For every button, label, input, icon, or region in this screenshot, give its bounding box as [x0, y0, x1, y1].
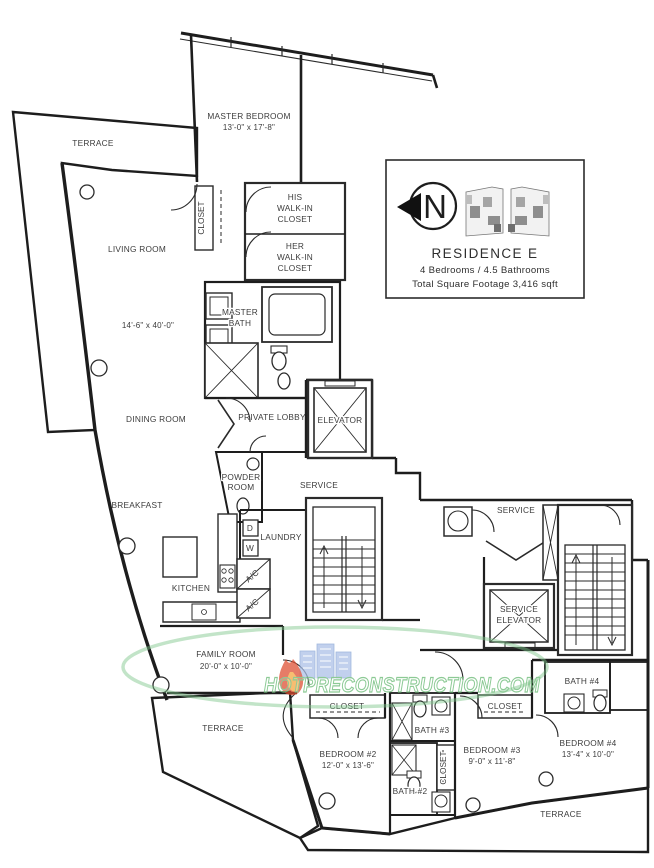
label-service-elevator-1: SERVICE [500, 604, 538, 614]
bidet [278, 373, 290, 389]
label-his-closet-2: WALK-IN [277, 203, 313, 213]
north-letter: N [423, 188, 447, 225]
kitchen [163, 514, 240, 622]
label-dining-room: DINING ROOM [126, 414, 186, 424]
label-breakfast: BREAKFAST [111, 500, 162, 510]
label-closet-hall: CLOSET [438, 751, 448, 784]
label-terrace-br: TERRACE [540, 809, 582, 819]
powder-sink [247, 458, 259, 470]
watermark: HOTPRECONSTRUCTION.COM [123, 627, 547, 707]
label-gallery-closet: CLOSET [196, 201, 206, 234]
double-door [486, 541, 546, 560]
label-bath4: BATH #4 [565, 676, 600, 686]
kitchen-counter [218, 514, 237, 592]
label-his-closet-3: CLOSET [278, 214, 313, 224]
bathtub [262, 287, 332, 342]
label-living-room: LIVING ROOM [108, 244, 166, 254]
label-her-closet-3: CLOSET [278, 263, 313, 273]
label-his-closet-1: HIS [288, 192, 303, 202]
terrace-top-left [13, 112, 197, 432]
label-terrace-top: TERRACE [72, 138, 114, 148]
legend-box: N RESIDENCE E 4 Bedrooms / 4.5 Bathrooms… [386, 160, 584, 298]
terrace-bottom-left [152, 692, 318, 838]
label-dryer: D [247, 523, 253, 533]
dims-bedroom2: 12'-0" x 13'-6" [322, 761, 374, 770]
dims-family-room: 20'-0" x 10'-0" [200, 662, 252, 671]
watermark-text: HOTPRECONSTRUCTION.COM [264, 673, 540, 697]
label-powder-2: ROOM [228, 482, 255, 492]
dims-bedroom4: 13'-4" x 10'-0" [562, 750, 614, 759]
label-service-hall: SERVICE [300, 480, 338, 490]
floorplan-sheet: TERRACE MASTER BEDROOM 13'-0" x 17'-8" C… [0, 0, 654, 868]
dims-master-bedroom: 13'-0" x 17'-8" [223, 123, 275, 132]
label-closet-b3: CLOSET [488, 701, 523, 711]
legend-square-footage: Total Square Footage 3,416 sqft [412, 279, 558, 290]
bath4 [545, 662, 648, 713]
kitchen-island [163, 537, 197, 577]
service-stair-left [306, 498, 382, 620]
powder-toilet [237, 498, 249, 514]
label-bedroom4: BEDROOM #4 [560, 738, 617, 748]
label-kitchen: KITCHEN [172, 583, 210, 593]
label-private-lobby: PRIVATE LOBBY [238, 412, 306, 422]
floorplan-drawing: TERRACE MASTER BEDROOM 13'-0" x 17'-8" C… [0, 0, 654, 868]
label-her-closet-1: HER [286, 241, 304, 251]
dims-living-room: 14'-6" x 40'-0" [122, 321, 174, 330]
utility-sink [444, 507, 472, 536]
label-washer: W [246, 543, 254, 553]
toilet [271, 346, 287, 370]
label-family-room: FAMILY ROOM [196, 649, 256, 659]
label-bath2: BATH #2 [393, 786, 428, 796]
label-laundry: LAUNDRY [260, 532, 301, 542]
legend-residence-title: RESIDENCE E [432, 246, 539, 261]
label-service-area: SERVICE [497, 505, 535, 515]
label-service-elevator-2: ELEVATOR [497, 615, 542, 625]
label-elevator: ELEVATOR [318, 415, 363, 425]
label-master-bath-1: MASTER [222, 307, 258, 317]
label-her-closet-2: WALK-IN [277, 252, 313, 262]
service-stair-right [558, 505, 632, 655]
label-bedroom2: BEDROOM #2 [320, 749, 377, 759]
label-powder-1: POWDER [222, 472, 261, 482]
shaft [543, 505, 558, 580]
dims-bedroom3: 9'-0" x 11'-8" [469, 757, 516, 766]
shower [205, 343, 258, 398]
label-master-bedroom: MASTER BEDROOM [207, 111, 290, 121]
label-bedroom3: BEDROOM #3 [464, 745, 521, 755]
label-master-bath-2: BATH [229, 318, 252, 328]
label-bath3: BATH #3 [415, 725, 450, 735]
legend-beds-baths: 4 Bedrooms / 4.5 Bathrooms [420, 265, 550, 276]
label-terrace-bl: TERRACE [202, 723, 244, 733]
